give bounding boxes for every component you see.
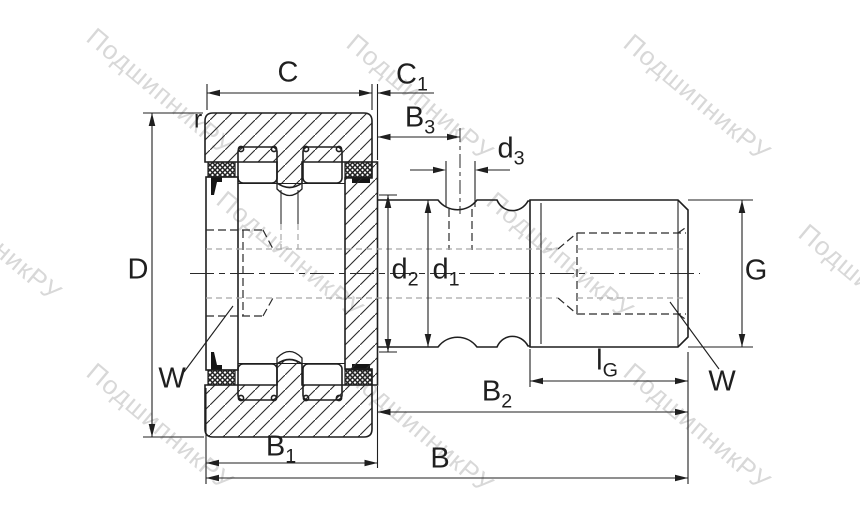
dim-label-B: B xyxy=(430,445,449,480)
dim-label-B1: B1 xyxy=(266,433,296,468)
dim-label-C: C xyxy=(278,59,299,94)
dim-label-d2: d2 xyxy=(391,256,418,291)
dim-label-lG: lG xyxy=(596,347,618,382)
dim-label-B2: B2 xyxy=(482,378,512,413)
bearing-dimension-drawing: ПодшипникРУ ПодшипникРУ ПодшипникРУ Подш… xyxy=(0,0,860,530)
dim-label-B3: B3 xyxy=(405,104,435,139)
dim-label-D: D xyxy=(128,256,149,291)
dim-label-W-right: W xyxy=(708,368,735,403)
dim-label-d3: d3 xyxy=(497,135,524,170)
dim-label-W-left: W xyxy=(158,365,185,400)
dim-label-G: G xyxy=(745,257,768,292)
dim-label-r: r xyxy=(194,108,202,137)
dim-label-C1: C1 xyxy=(396,61,428,96)
dim-label-d1: d1 xyxy=(432,256,459,291)
